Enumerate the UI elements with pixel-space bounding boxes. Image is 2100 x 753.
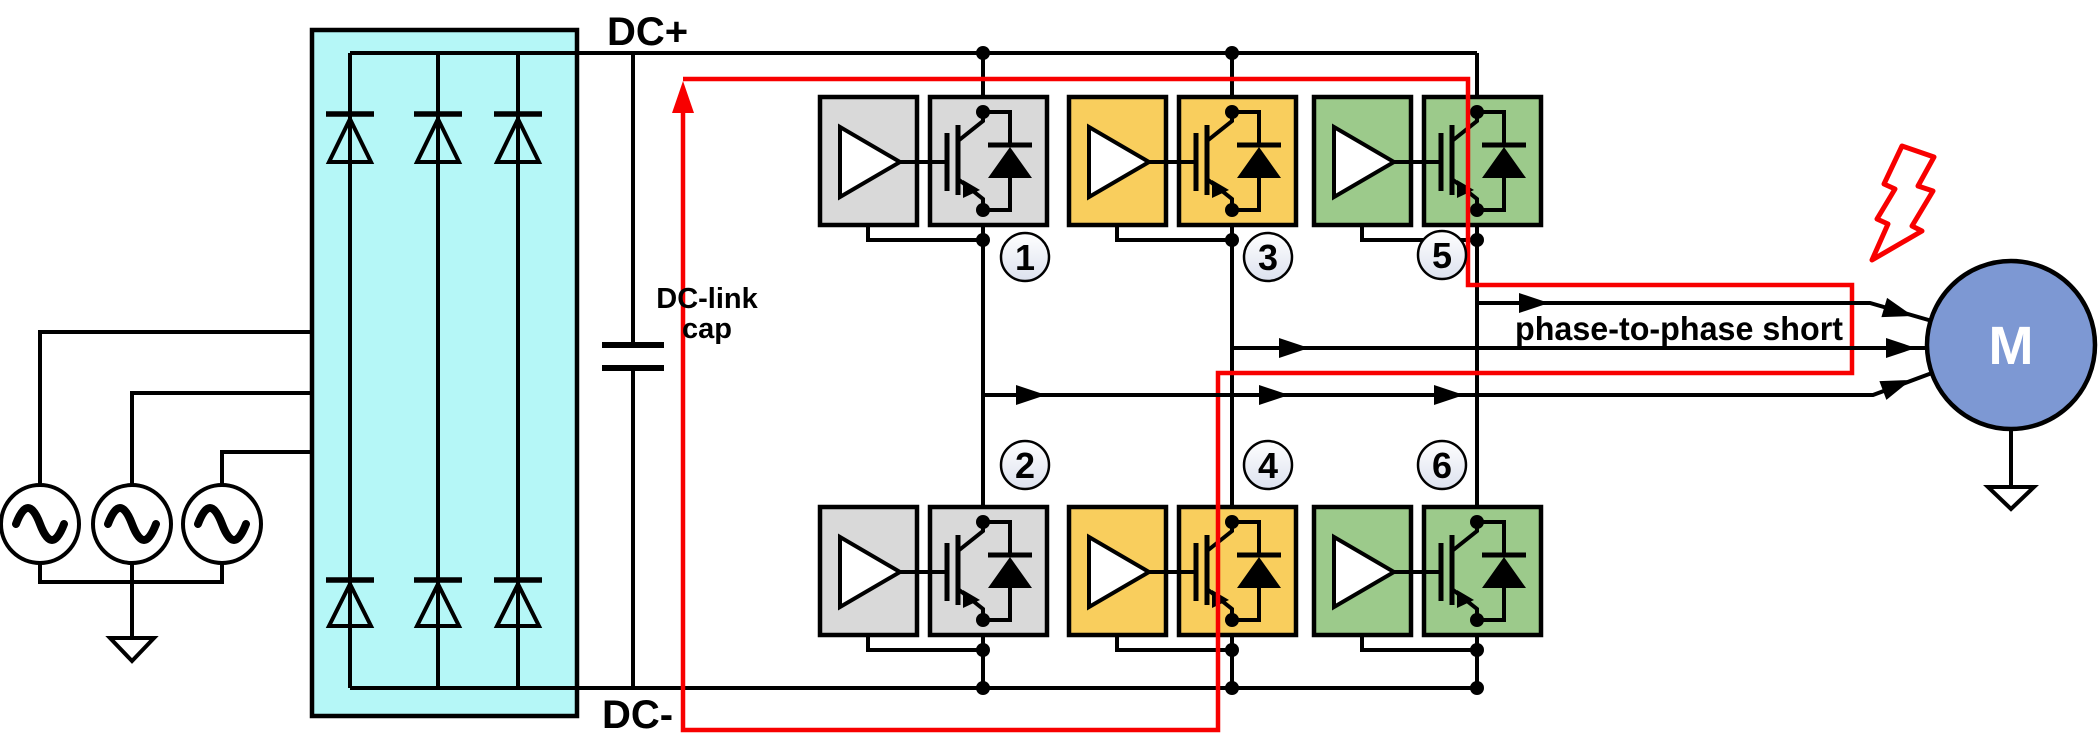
- inverter-fault-diagram: M 1 2 3 4 5 6 DC+ DC- DC-link cap phase-…: [0, 0, 2100, 753]
- ac-source-section: [1, 332, 313, 661]
- phase-arrow-icon: [1886, 338, 1916, 358]
- phase-line-u: [983, 373, 1932, 395]
- junction-dot: [1225, 643, 1239, 657]
- module-4: [1069, 507, 1296, 635]
- module-5: [1314, 97, 1541, 225]
- module-6: [1314, 507, 1541, 635]
- schematic-canvas: M 1 2 3 4 5 6 DC+ DC- DC-link cap phase-…: [0, 0, 2100, 753]
- dc-minus-label: DC-: [602, 693, 673, 737]
- module-number: 5: [1432, 235, 1452, 276]
- ground-icon: [1988, 487, 2034, 509]
- module-1: [820, 97, 1047, 225]
- module-number: 4: [1258, 445, 1278, 486]
- junction-dot: [976, 233, 990, 247]
- ac-feed-wires: [40, 332, 313, 485]
- module-number: 2: [1015, 445, 1035, 486]
- phase-arrow-icon: [1881, 298, 1915, 326]
- fault-direction-arrow-icon: [672, 81, 694, 113]
- module-3: [1069, 97, 1296, 225]
- igbt-modules: [820, 97, 1541, 635]
- junction-dot: [1225, 681, 1239, 695]
- junction-dot: [1470, 681, 1484, 695]
- dc-plus-label: DC+: [607, 10, 688, 54]
- junction-dot: [1470, 643, 1484, 657]
- phase-arrow-icon: [1434, 385, 1464, 405]
- motor-label: M: [1989, 316, 2034, 376]
- phase-arrow-icon: [1016, 385, 1046, 405]
- junction-dot: [976, 643, 990, 657]
- capacitor-icon: [602, 345, 664, 368]
- lightning-icon: [1872, 146, 1934, 260]
- module-number: 6: [1432, 445, 1452, 486]
- fault-label: phase-to-phase short: [1515, 310, 1843, 347]
- ground-icon: [110, 638, 154, 661]
- phase-arrow-icon: [1279, 338, 1309, 358]
- phase-arrow-icon: [1879, 371, 1914, 400]
- dc-link-cap-label-line2: cap: [682, 313, 732, 345]
- junction-dot: [1225, 233, 1239, 247]
- ac-neutral-wires: [40, 563, 222, 638]
- junction-dot: [1225, 46, 1239, 60]
- junction-dot: [976, 46, 990, 60]
- phase-arrow-icon: [1259, 385, 1289, 405]
- junction-dot: [1470, 233, 1484, 247]
- rectifier-block: [312, 30, 577, 716]
- motor: M: [1927, 261, 2095, 509]
- junction-dot: [976, 681, 990, 695]
- module-number: 1: [1015, 237, 1035, 278]
- module-2: [820, 507, 1047, 635]
- dc-link-cap-label-line1: DC-link: [656, 283, 758, 315]
- module-number: 3: [1258, 237, 1278, 278]
